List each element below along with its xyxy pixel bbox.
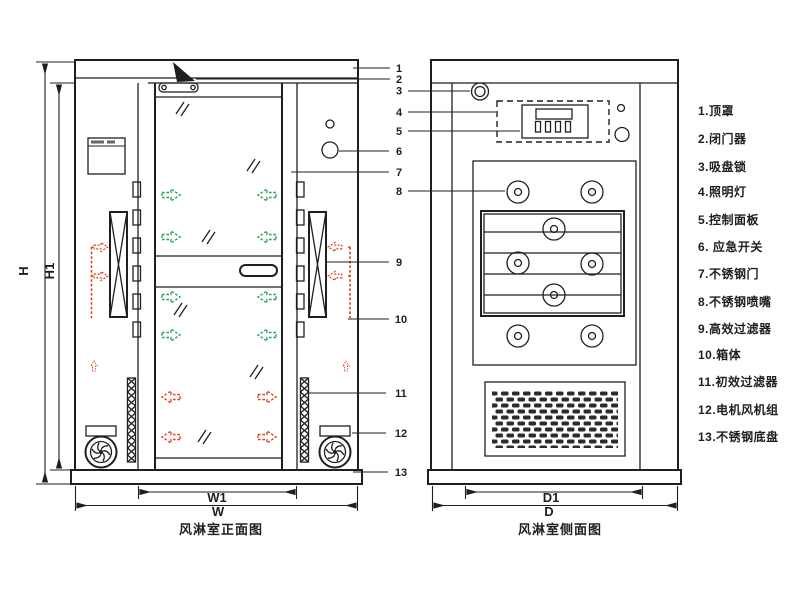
recirculation-path-left [91, 243, 108, 371]
callout-3: 3 [396, 86, 402, 98]
airflow-arrows-red [162, 391, 276, 443]
legend-item-1: 1.顶罩 [698, 102, 734, 119]
control-panel [522, 105, 588, 138]
callout-4: 4 [396, 107, 403, 119]
nozzle [507, 252, 529, 274]
nozzle [507, 181, 529, 203]
glass-mark [247, 159, 260, 173]
callout-8: 8 [396, 186, 402, 198]
door-handle [240, 265, 277, 276]
callout-12: 12 [395, 428, 407, 440]
emergency-switch-side [615, 128, 629, 142]
bottom-plate [71, 470, 362, 484]
callout-2: 2 [396, 74, 402, 86]
panel-button [536, 122, 541, 133]
dim-label-D: D [544, 504, 553, 519]
nameplate [88, 138, 125, 174]
callout-13: 13 [395, 467, 407, 479]
hepa-filter-left [110, 212, 127, 317]
legend-item-5: 5.控制面板 [698, 211, 759, 228]
control-zone-dashed-box [497, 101, 609, 142]
legend-item-13: 13.不锈钢底盘 [698, 428, 779, 445]
indicator-lamp-side [618, 105, 625, 112]
callout-numbers: 1 2 3 4 5 6 7 8 9 10 11 12 13 [395, 63, 407, 479]
nozzle [581, 325, 603, 347]
diagram-canvas: 1 2 3 4 5 6 7 8 9 10 11 12 13 H H1 W1 W … [0, 0, 800, 600]
legend-item-7: 7.不锈钢门 [698, 265, 759, 282]
glass-mark [250, 365, 263, 379]
front-view [71, 60, 362, 484]
legend-item-3: 3.吸盘锁 [698, 158, 747, 175]
legend-item-4: 4.照明灯 [698, 183, 747, 200]
door-closer-body [159, 83, 198, 92]
nozzle-stubs [133, 182, 304, 337]
callout-11: 11 [395, 388, 407, 400]
legend-item-11: 11.初效过滤器 [698, 373, 778, 390]
legend-item-6: 6. 应急开关 [698, 238, 763, 255]
nozzle [581, 253, 603, 275]
glass-mark [202, 230, 215, 244]
glass-mark [198, 430, 211, 444]
primary-filter-right [301, 378, 309, 462]
legend-item-12: 12.电机风机组 [698, 401, 779, 418]
hepa-filter-right [309, 212, 326, 317]
legend-item-8: 8.不锈钢喷嘴 [698, 293, 772, 310]
glass-mark [176, 102, 189, 116]
nozzle [507, 325, 529, 347]
callout-10: 10 [395, 314, 407, 326]
dim-label-W1: W1 [207, 490, 227, 505]
front-view-caption: 风淋室正面图 [179, 522, 263, 537]
display [536, 109, 572, 119]
legend-item-9: 9.高效过滤器 [698, 320, 772, 337]
dim-label-H1: H1 [42, 263, 57, 280]
cabinet-outline [75, 60, 358, 470]
panel-button [556, 122, 561, 133]
emergency-switch [322, 142, 338, 158]
blower-fan-left [86, 426, 117, 468]
dim-label-W: W [212, 504, 225, 519]
legend-item-10: 10.箱体 [698, 346, 741, 363]
door-closer-arm [173, 62, 195, 82]
primary-filter-left [128, 378, 136, 462]
nozzle-panel [473, 161, 636, 365]
legend-item-2: 2.闭门器 [698, 130, 747, 147]
callout-6: 6 [396, 146, 402, 158]
nozzle [543, 218, 565, 240]
air-shower-technical-diagram: 1 2 3 4 5 6 7 8 9 10 11 12 13 H H1 W1 W … [0, 0, 800, 600]
side-view [428, 60, 681, 484]
dim-label-D1: D1 [543, 490, 560, 505]
side-view-caption: 风淋室侧面图 [518, 522, 602, 537]
callout-7: 7 [396, 167, 402, 179]
blower-fan-right [320, 426, 351, 468]
dimension-lines: H H1 W1 W D1 D [16, 62, 678, 519]
return-air-grille [485, 382, 625, 456]
callout-5: 5 [396, 126, 402, 138]
door-closer [159, 62, 198, 92]
indicator-lamp [326, 120, 334, 128]
bottom-plate-side [428, 470, 681, 484]
panel-button [546, 122, 551, 133]
stainless-door [155, 83, 282, 470]
suction-lock [472, 83, 489, 100]
panel-button [566, 122, 571, 133]
nozzle [581, 181, 603, 203]
dim-label-H: H [16, 266, 31, 275]
glass-mark [174, 303, 187, 317]
callout-9: 9 [396, 257, 402, 269]
